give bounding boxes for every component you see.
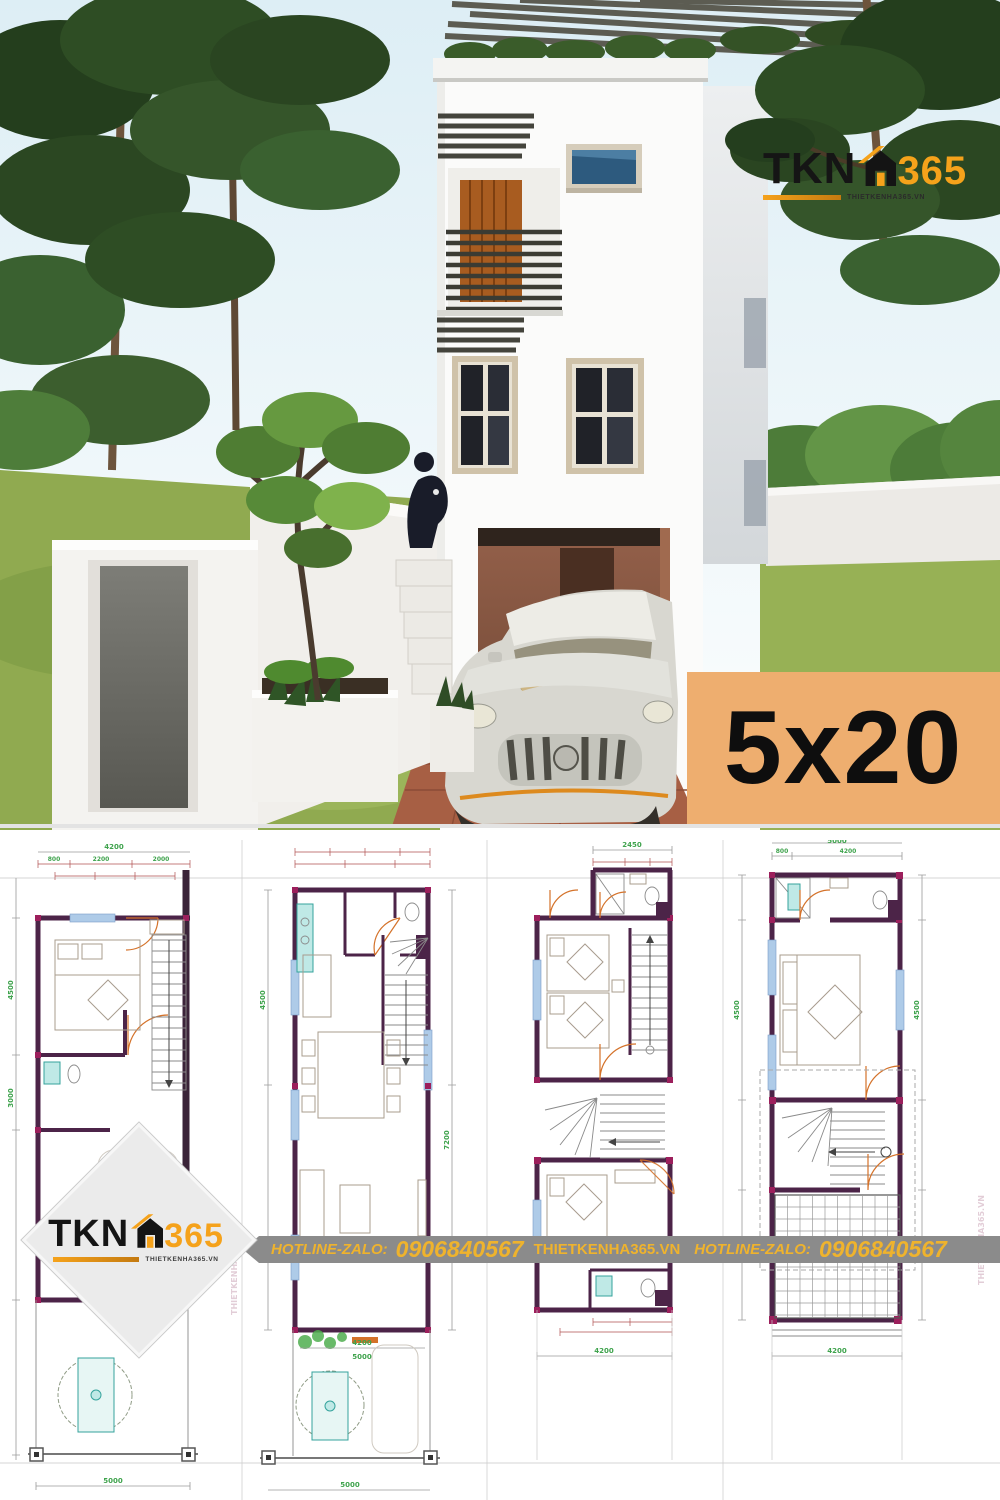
logo-underline <box>763 195 841 200</box>
dim-c1-left-b: 3000 <box>7 1088 15 1108</box>
window-right <box>566 358 644 474</box>
dim-c1-bottom: 5000 <box>103 1477 123 1485</box>
floor-plan-2: 4500 7200 <box>259 848 456 1490</box>
diamond-tkn-text: TKN <box>48 1215 129 1253</box>
hotline-banner: HOTLINE-ZALO: 0906840567 THIETKENHA365.V… <box>243 1236 1000 1263</box>
dim-c2-mid-b: 5000 <box>352 1353 372 1361</box>
banner-site: THIETKENHA365.VN <box>534 1241 681 1258</box>
hotline-label-1: HOTLINE-ZALO: <box>271 1241 388 1258</box>
dim-c4-sub1: 800 <box>776 848 789 855</box>
floor-plan-4: 5000 800 4200 4500 4500 <box>733 840 926 1460</box>
twin-beds <box>547 935 624 1048</box>
hotline-phone-1: 0906840567 <box>396 1236 524 1263</box>
dim-c1-top: 4200 <box>104 843 124 851</box>
dim-c2-left: 4500 <box>259 990 267 1010</box>
house-icon <box>858 143 896 189</box>
dim-c1-sub3: 2000 <box>153 856 170 863</box>
brand-logo-top: TKN 365 THIETKENHA365.VN <box>763 143 967 201</box>
window-left <box>452 356 518 474</box>
dim-c4-left: 4500 <box>733 1000 741 1020</box>
diamond-underline <box>53 1257 139 1262</box>
planter <box>252 657 398 802</box>
gate-pillar <box>52 540 258 830</box>
logo-site-text: THIETKENHA365.VN <box>847 194 925 201</box>
photo-bottom-edge <box>0 824 1000 828</box>
bed-symbol <box>55 940 140 1030</box>
dim-c2-right: 7200 <box>443 1130 451 1150</box>
dim-c2-bottom: 5000 <box>340 1481 360 1489</box>
gate-door <box>100 566 188 808</box>
dim-c3-top: 2450 <box>622 841 642 849</box>
dim-c4-sub2: 4200 <box>840 848 857 855</box>
dim-c1-left-a: 4500 <box>7 980 15 1000</box>
dim-c1-sub2: 2200 <box>93 856 110 863</box>
hotline-label-2: HOTLINE-ZALO: <box>694 1241 811 1258</box>
house-icon <box>131 1211 163 1251</box>
dim-c2-mid-a: 4200 <box>352 1339 372 1347</box>
dim-c1-sub1: 800 <box>48 856 61 863</box>
diamond-365-text: 365 <box>164 1219 224 1253</box>
diamond-site-text: THIETKENHA365.VN <box>145 1256 218 1263</box>
dim-c4-right: 4500 <box>913 1000 921 1020</box>
bed-symbol-2 <box>547 1170 655 1237</box>
window-blue <box>566 144 642 193</box>
size-label: 5x20 <box>724 689 963 808</box>
dim-c3-bottom: 4200 <box>594 1347 614 1355</box>
logo-365-text: 365 <box>897 151 967 191</box>
brand-logo-diamond: TKN 365 THIETKENHA365.VN <box>23 1124 249 1350</box>
size-badge: 5x20 <box>687 672 1000 824</box>
hotline-phone-2: 0906840567 <box>819 1236 947 1263</box>
bed-symbol-3 <box>780 955 862 1065</box>
logo-tkn-text: TKN <box>763 147 856 191</box>
floor-plan-3: 2450 <box>533 841 674 1460</box>
dim-c4-top: 5000 <box>827 840 847 845</box>
house-design-pin: TKN 365 THIETKENHA365.VN 5x20 THIETKENHA… <box>0 0 1000 1500</box>
dim-c4-bottom: 4200 <box>827 1347 847 1355</box>
